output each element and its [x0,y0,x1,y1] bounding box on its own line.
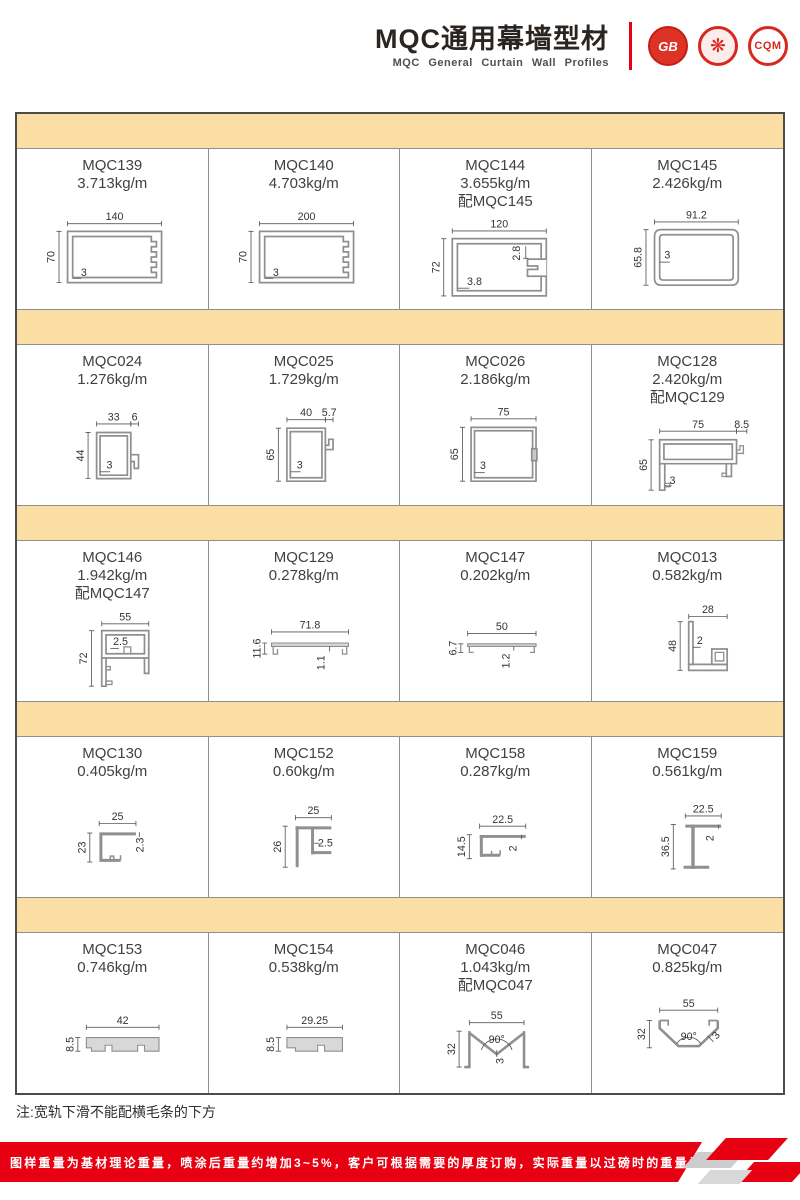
profile-drawing-area: 506.71.2 [400,585,591,701]
profile-model: MQC146 [82,549,142,567]
profile-outline [709,1020,718,1025]
profile-drawing-MQC153: 428.5 [20,988,204,1082]
profile-outline [464,1031,469,1067]
profile-outline [471,427,536,481]
profile-cell-MQC154: MQC1540.538kg/m29.258.5 [209,933,401,1093]
dim-label: 3 [107,459,113,471]
profile-cell-MQC145: MQC1452.426kg/m91.265.83 [592,149,784,309]
profile-outline [131,455,139,469]
page-title: MQC通用幕墙型材 [375,24,609,54]
profile-drawing-MQC147: 506.71.2 [403,596,587,690]
profile-outline [532,449,537,461]
dim-label: 50 [496,621,508,633]
dim-label: 5.7 [322,407,337,419]
profile-model: MQC046 [465,941,525,959]
dim-label: 42 [117,1015,129,1027]
profile-cell-MQC047: MQC0470.825kg/m553290°3 [592,933,784,1093]
dim-label: 48 [667,640,679,652]
profile-cell-MQC146: MQC1461.942kg/m配MQC14755722.5 [17,541,209,701]
profile-drawing-area: 200703 [209,193,400,309]
profile-model: MQC140 [274,157,334,175]
footer-bar: 图样重量为基材理论重量，喷涂后重量约增加3~5%，客户可根据需要的厚度订购，实际… [0,1142,702,1182]
cert-logo-gb-label: GB [658,39,678,54]
profile-weight: 1.043kg/m [460,959,530,977]
profile-drawing-MQC152: 25262.5 [212,792,396,886]
profile-weight: 0.202kg/m [460,567,530,585]
dim-label: 3 [273,267,279,279]
profile-weight: 0.60kg/m [273,763,335,781]
profile-drawing-area: 25262.5 [209,781,400,897]
dim-label: 70 [237,251,249,263]
profile-drawing-MQC026: 75653 [403,400,587,494]
profile-model: MQC013 [657,549,717,567]
profile-row: MQC1393.713kg/m140703MQC1404.703kg/m2007… [17,149,783,309]
profile-outline [715,652,724,661]
profile-pair: 配MQC129 [650,389,725,407]
profile-model: MQC158 [465,745,525,763]
profile-drawing-area: 758.5653 [592,407,784,505]
profile-cell-MQC046: MQC0461.043kg/m配MQC047553290°3 [400,933,592,1093]
profile-outline [87,1038,160,1052]
dim-label: 3 [81,267,87,279]
profile-weight: 3.713kg/m [77,175,147,193]
profile-cell-MQC152: MQC1520.60kg/m25262.5 [209,737,401,897]
profile-weight: 1.942kg/m [77,567,147,585]
profile-drawing-area: 71.811.61.1 [209,585,400,701]
dim-label: 91.2 [686,210,707,222]
section-band [17,114,783,149]
dim-label: 2.8 [511,246,523,261]
profile-cell-MQC139: MQC1393.713kg/m140703 [17,149,209,309]
profile-weight: 0.582kg/m [652,567,722,585]
dim-label: 71.8 [299,619,320,631]
profile-outline [470,646,474,652]
dim-label: 6.7 [448,641,460,656]
footer-disclaimer: 图样重量为基材理论重量，喷涂后重量约增加3~5%，客户可根据需要的厚度订购，实际… [10,1154,731,1171]
profile-outline [468,644,536,647]
profile-cell-MQC147: MQC1470.202kg/m506.71.2 [400,541,592,701]
dim-label: 25 [307,805,319,817]
dim-label: 2.3 [135,838,147,853]
profile-outline [145,658,149,673]
profile-weight: 2.426kg/m [652,175,722,193]
profile-weight: 0.746kg/m [77,959,147,977]
dim-label: 23 [77,842,89,854]
dim-label: 22.5 [493,814,514,826]
profile-weight: 1.729kg/m [269,371,339,389]
dim-label: 72 [78,652,90,664]
profile-cell-MQC024: MQC0241.276kg/m336443 [17,345,209,505]
profile-weight: 1.276kg/m [77,371,147,389]
profile-drawing-area: 25232.3 [17,781,208,897]
dim-label: 2 [508,845,520,851]
profile-outline [106,681,112,684]
profile-model: MQC147 [465,549,525,567]
dim-label: 33 [108,412,120,424]
footer-deco-parallelogram [706,1138,788,1160]
dim-label: 55 [120,611,132,623]
profile-outline [664,444,732,459]
profile-drawing-area: 120723.82.8 [400,211,591,309]
profile-drawing-area: 75653 [400,389,591,505]
profile-cell-MQC129: MQC1290.278kg/m71.811.61.1 [209,541,401,701]
profile-drawing-MQC047: 553290°3 [595,988,779,1082]
dim-label: 44 [75,450,87,462]
cert-logo-cqm: CQM [748,26,788,66]
profile-outline [287,1038,343,1052]
profile-weight: 0.538kg/m [269,959,339,977]
profile-outline [712,649,727,664]
profile-model: MQC139 [82,157,142,175]
profile-pair: 配MQC147 [75,585,150,603]
profile-outline [528,259,547,276]
profile-outline [325,439,333,449]
profile-weight: 0.405kg/m [77,763,147,781]
profile-outline [100,436,127,475]
profile-drawing-area: 55722.5 [17,603,208,701]
profile-model: MQC025 [274,353,334,371]
profile-drawing-MQC024: 336443 [20,400,204,494]
dim-label: 28 [702,604,714,616]
profile-cell-MQC130: MQC1300.405kg/m25232.3 [17,737,209,897]
dim-label: 75 [498,406,510,418]
profile-weight: 2.420kg/m [652,371,722,389]
dim-label: 72 [431,261,443,273]
dim-label: 40 [300,407,312,419]
section-band [17,309,783,345]
profile-model: MQC145 [657,157,717,175]
profile-model: MQC024 [82,353,142,371]
dim-label: 2.5 [113,636,128,648]
profile-outline [287,428,325,481]
profile-outline [102,658,106,686]
profile-weight: 0.278kg/m [269,567,339,585]
cert-seal-glyph: ❋ [710,35,726,58]
profile-weight: 0.287kg/m [460,763,530,781]
profile-outline [524,1031,529,1067]
dim-label: 55 [683,998,695,1010]
profile-cell-MQC128: MQC1282.420kg/m配MQC129758.5653 [592,345,784,505]
dim-label: 65 [638,459,650,471]
dim-label: 6 [132,412,138,424]
profile-drawing-area: 553290°3 [592,977,784,1093]
profile-outline [271,643,348,646]
page-subtitle: MQC General Curtain Wall Profiles [375,57,609,69]
profile-table: MQC1393.713kg/m140703MQC1404.703kg/m2007… [15,112,785,1095]
profile-drawing-area: 428.5 [17,977,208,1093]
profile-drawing-area: 553290°3 [400,995,591,1093]
profile-cell-MQC140: MQC1404.703kg/m200703 [209,149,401,309]
profile-outline [689,622,693,665]
profile-drawing-MQC046: 553290°3 [403,997,587,1091]
dim-label: 8.5 [265,1037,277,1052]
profile-model: MQC130 [82,745,142,763]
profile-cell-MQC026: MQC0262.186kg/m75653 [400,345,592,505]
profile-pair: 配MQC145 [458,193,533,211]
profile-drawing-area: 405.7653 [209,389,400,505]
profile-drawing-MQC129: 71.811.61.1 [212,596,396,690]
dim-label: 70 [46,251,58,263]
profile-row: MQC1461.942kg/m配MQC14755722.5MQC1290.278… [17,541,783,701]
profile-drawing-MQC128: 758.5653 [595,409,779,503]
dim-label: 26 [272,841,284,853]
profile-model: MQC154 [274,941,334,959]
profile-outline [727,464,732,477]
dim-label: 1.2 [501,653,513,668]
dim-label: 22.5 [693,804,714,816]
profile-drawing-area: 28482 [592,585,784,701]
profile-drawing-area: 140703 [17,193,208,309]
profile-weight: 0.561kg/m [652,763,722,781]
section-band [17,897,783,933]
dim-label: 29.25 [301,1015,328,1027]
profile-cell-MQC153: MQC1530.746kg/m428.5 [17,933,209,1093]
profile-cell-MQC144: MQC1443.655kg/m配MQC145120723.82.8 [400,149,592,309]
profile-model: MQC129 [274,549,334,567]
dim-label: 65 [450,448,462,460]
dim-label: 75 [692,419,704,431]
profile-drawing-MQC154: 29.258.5 [212,988,396,1082]
dim-label: 3.8 [467,276,482,288]
profile-cell-MQC025: MQC0251.729kg/m405.7653 [209,345,401,505]
profile-drawing-MQC025: 405.7653 [212,400,396,494]
profile-outline [342,646,346,654]
profile-weight: 2.186kg/m [460,371,530,389]
dim-label: 32 [636,1028,648,1040]
dim-label: 55 [491,1010,503,1022]
profile-outline [523,246,528,258]
profile-model: MQC153 [82,941,142,959]
profile-model: MQC128 [657,353,717,371]
profile-drawing-MQC144: 120723.82.8 [403,213,587,307]
profile-drawing-area: 29.258.5 [209,977,400,1093]
dim-label: 8.5 [65,1037,77,1052]
profile-outline [689,664,727,670]
profile-drawing-area: 91.265.83 [592,193,784,309]
dim-label: 65 [265,449,277,461]
profile-cell-MQC158: MQC1580.287kg/m22.514.52 [400,737,592,897]
cert-logo-cqm-label: CQM [754,40,781,52]
profile-drawing-MQC159: 22.536.52 [595,792,779,886]
cert-seal-icon: ❋ [698,26,738,66]
section-band [17,505,783,541]
profile-drawing-MQC158: 22.514.52 [403,792,587,886]
title-block: MQC通用幕墙型材 MQC General Curtain Wall Profi… [375,24,609,69]
dim-label: 25 [112,811,124,823]
dim-label: 36.5 [660,836,672,857]
cert-logo-gb: GB [648,26,688,66]
profile-model: MQC026 [465,353,525,371]
profile-weight: 4.703kg/m [269,175,339,193]
dim-label: 2 [705,835,717,841]
header-divider [629,22,632,70]
dim-label: 200 [297,211,315,223]
dim-label: 140 [106,211,124,223]
dim-label: 11.6 [251,639,263,659]
profile-drawing-MQC145: 91.265.83 [595,204,779,298]
dim-label: 14.5 [456,836,468,857]
note-text: 注:宽轨下滑不能配横毛条的下方 [16,1102,216,1122]
profile-drawing-area: 22.514.52 [400,781,591,897]
dim-label: 90° [681,1031,697,1043]
profile-outline [660,235,733,280]
section-band [17,701,783,737]
profile-model: MQC159 [657,745,717,763]
profile-model: MQC152 [274,745,334,763]
dim-label: 3 [665,250,671,262]
profile-model: MQC047 [657,941,717,959]
dim-label: 1.1 [315,655,327,670]
dim-label: 3 [670,475,676,487]
profile-outline [737,446,744,454]
profile-row: MQC0241.276kg/m336443MQC0251.729kg/m405.… [17,345,783,505]
profile-weight: 3.655kg/m [460,175,530,193]
profile-cell-MQC159: MQC1590.561kg/m22.536.52 [592,737,784,897]
profile-drawing-MQC013: 28482 [595,596,779,690]
dim-label: 65.8 [633,247,645,268]
profile-outline [273,646,277,654]
dim-label: 3 [480,460,486,472]
profile-pair: 配MQC047 [458,977,533,995]
profile-drawing-MQC130: 25232.3 [20,792,204,886]
dim-label: 8.5 [735,419,750,431]
profile-drawing-area: 336443 [17,389,208,505]
dim-label: 2 [697,635,703,647]
dim-label: 90° [489,1034,505,1046]
profile-drawing-MQC139: 140703 [20,204,204,298]
profile-outline [101,834,136,860]
profile-weight: 0.825kg/m [652,959,722,977]
profile-row: MQC1300.405kg/m25232.3MQC1520.60kg/m2526… [17,737,783,897]
profile-cell-MQC013: MQC0130.582kg/m28482 [592,541,784,701]
profile-outline [290,432,322,478]
dim-label: 32 [446,1043,458,1055]
profile-outline [660,464,665,490]
profile-drawing-MQC140: 200703 [212,204,396,298]
profile-outline [530,646,534,652]
dim-label: 2.5 [318,838,333,850]
profile-row: MQC1530.746kg/m428.5MQC1540.538kg/m29.25… [17,933,783,1093]
profile-model: MQC144 [465,157,525,175]
dim-label: 120 [491,219,509,231]
profile-drawing-MQC146: 55722.5 [20,605,204,699]
dim-label: 3 [297,459,303,471]
profile-drawing-area: 22.536.52 [592,781,784,897]
page-header: MQC通用幕墙型材 MQC General Curtain Wall Profi… [0,0,800,100]
dim-label: 3 [495,1058,507,1064]
